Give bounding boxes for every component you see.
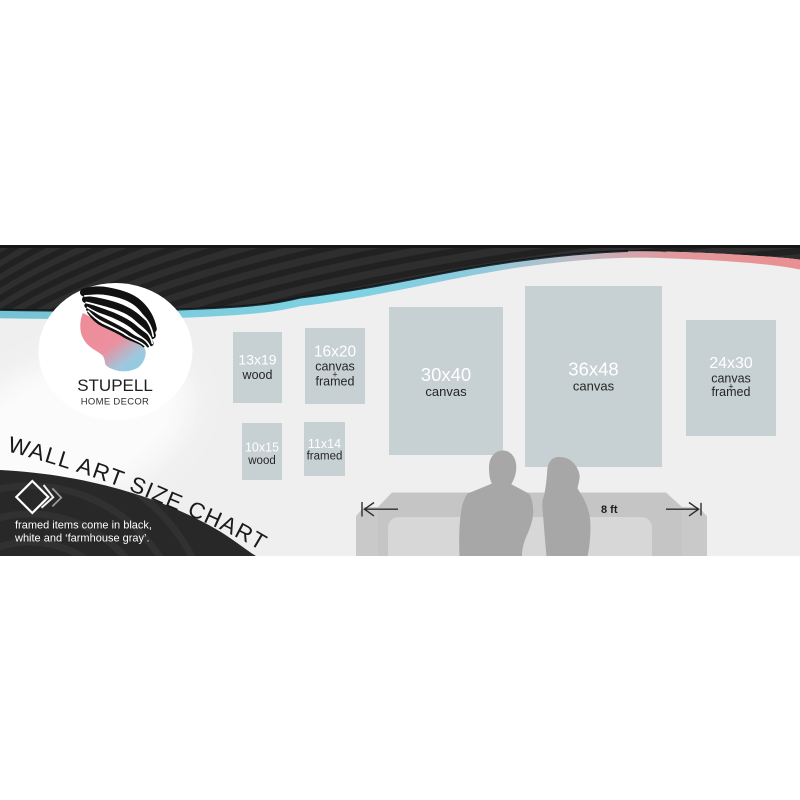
svg-text:HOME DECOR: HOME DECOR: [81, 397, 149, 408]
svg-text:STUPELL: STUPELL: [77, 376, 153, 395]
svg-text:wood: wood: [242, 368, 273, 382]
svg-text:36x48: 36x48: [568, 359, 618, 380]
svg-text:16x20: 16x20: [314, 344, 357, 361]
svg-text:11x14: 11x14: [308, 437, 341, 451]
svg-text:framed: framed: [712, 385, 751, 399]
svg-text:13x19: 13x19: [238, 352, 276, 368]
svg-text:framed items come in black,: framed items come in black,: [15, 520, 152, 532]
svg-text:8 ft: 8 ft: [601, 504, 618, 516]
svg-text:framed: framed: [307, 451, 343, 463]
svg-text:24x30: 24x30: [709, 355, 753, 372]
svg-text:white and ‘farmhouse gray’.: white and ‘farmhouse gray’.: [14, 533, 150, 545]
svg-text:30x40: 30x40: [421, 364, 471, 385]
svg-text:canvas: canvas: [573, 379, 615, 394]
svg-text:canvas: canvas: [425, 384, 467, 399]
svg-text:10x15: 10x15: [245, 441, 279, 455]
svg-text:wood: wood: [247, 455, 276, 467]
svg-text:framed: framed: [316, 375, 355, 389]
